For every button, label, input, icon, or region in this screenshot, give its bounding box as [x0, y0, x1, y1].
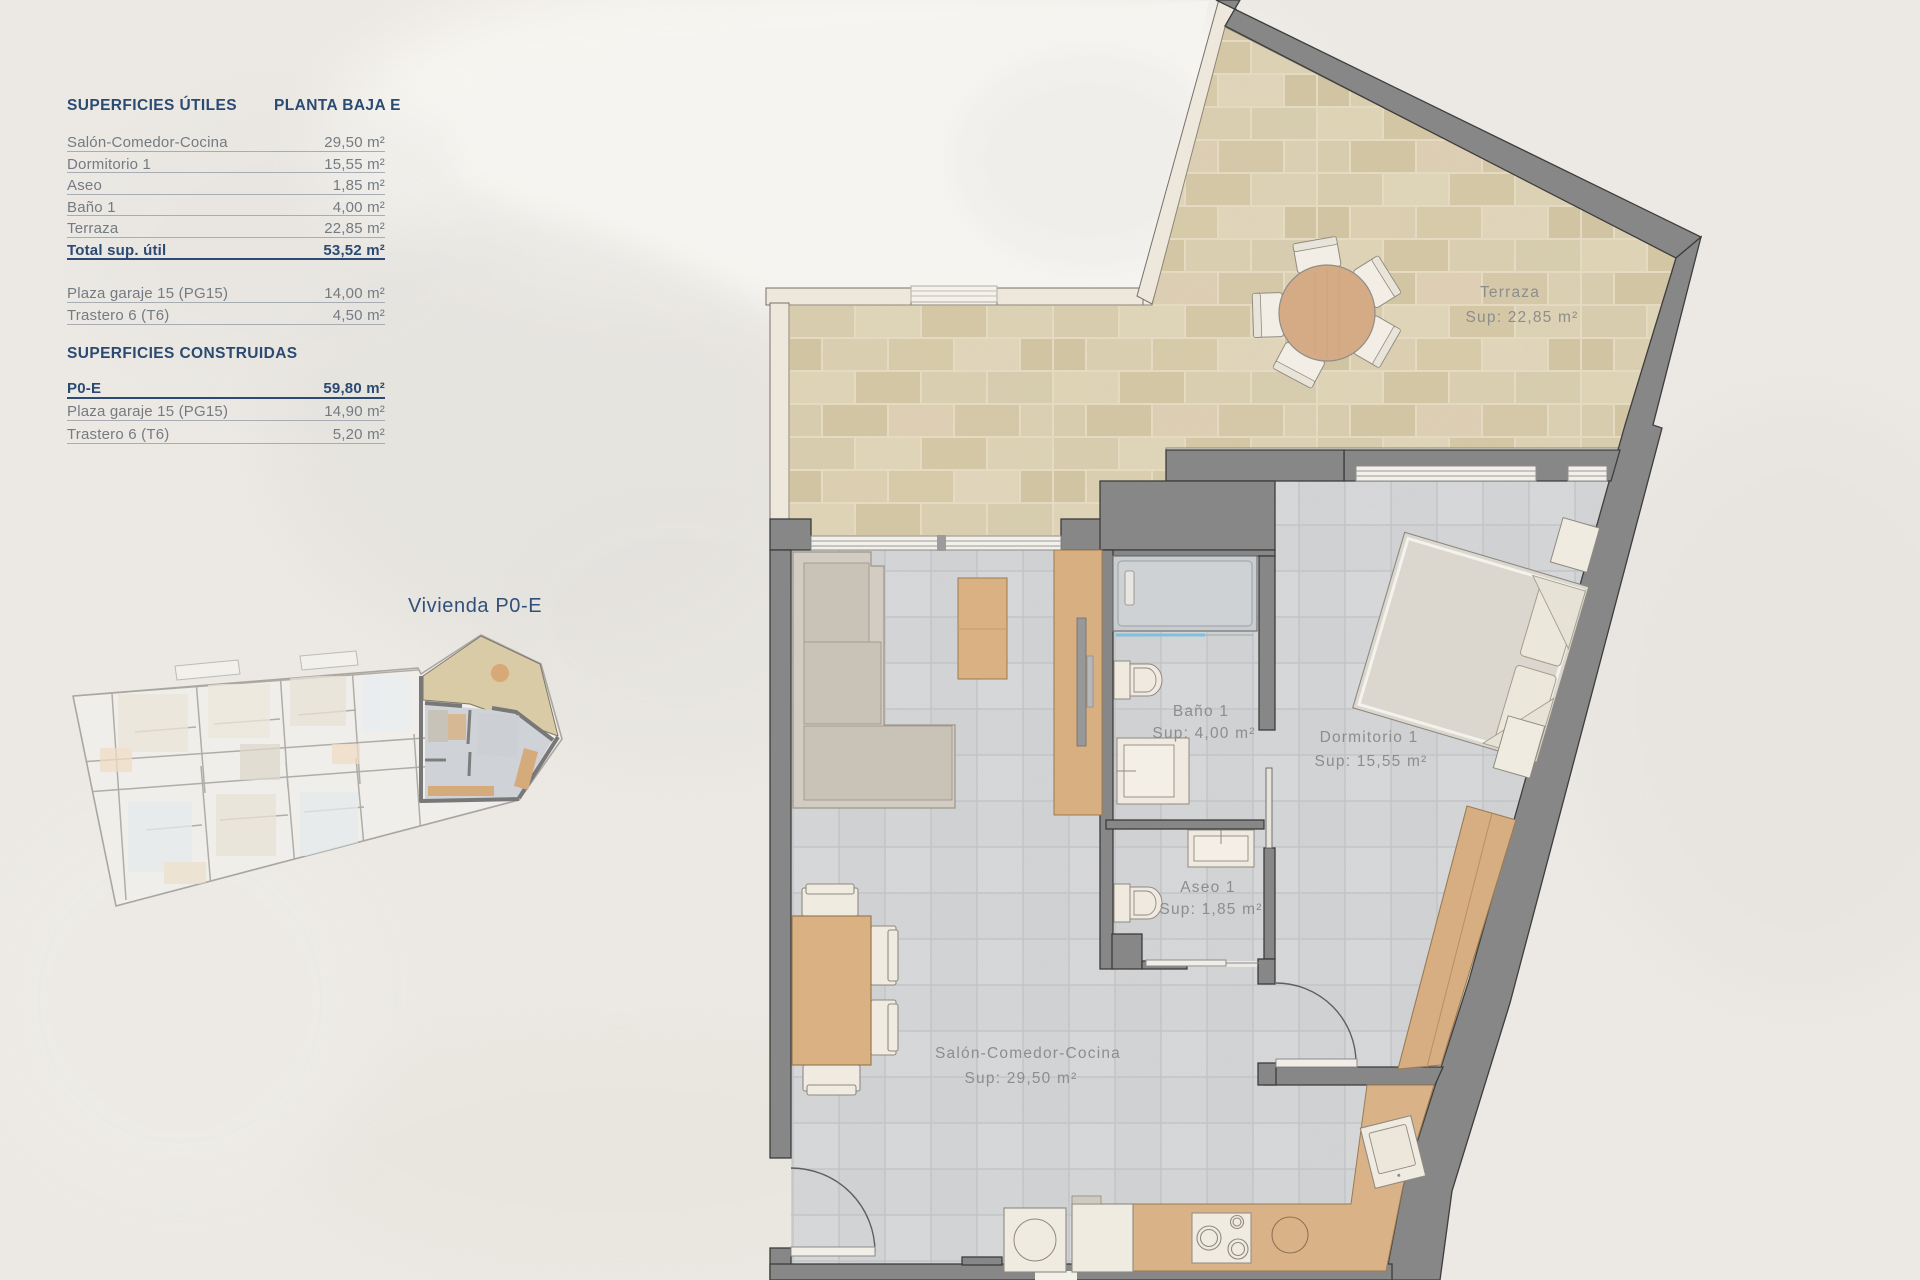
svg-text:Terraza: Terraza	[1480, 284, 1540, 301]
svg-text:Dormitorio 1: Dormitorio 1	[1320, 729, 1419, 746]
svg-text:Baño 1: Baño 1	[1173, 703, 1229, 720]
svg-text:Sup: 4,00 m²: Sup: 4,00 m²	[1152, 725, 1255, 742]
svg-text:Sup: 1,85 m²: Sup: 1,85 m²	[1159, 901, 1262, 918]
svg-text:Salón-Comedor-Cocina: Salón-Comedor-Cocina	[935, 1045, 1121, 1062]
svg-text:Aseo 1: Aseo 1	[1180, 879, 1235, 896]
svg-text:Vivienda P0-E: Vivienda P0-E	[408, 595, 542, 617]
svg-text:Sup: 15,55 m²: Sup: 15,55 m²	[1315, 753, 1428, 770]
svg-text:Sup: 29,50 m²: Sup: 29,50 m²	[965, 1070, 1078, 1087]
svg-text:Sup: 22,85 m²: Sup: 22,85 m²	[1466, 309, 1579, 326]
